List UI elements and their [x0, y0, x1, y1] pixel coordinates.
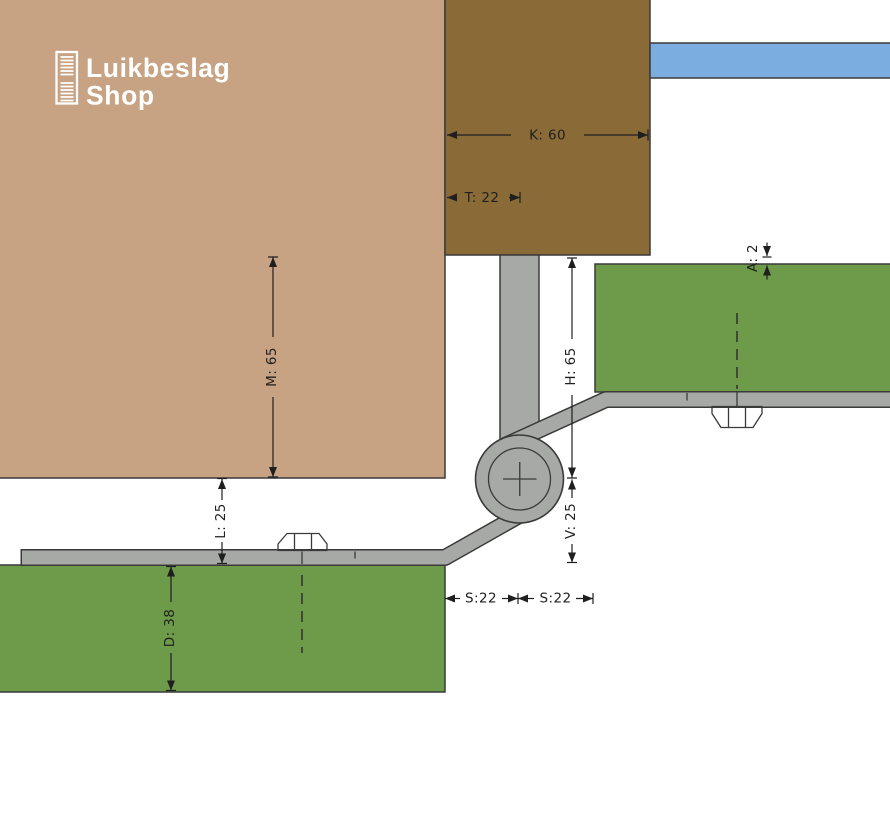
- dimension-V-label: V: 25: [563, 503, 579, 539]
- dimension-M-label: M: 65: [264, 347, 280, 387]
- dimension-H: H: 65: [563, 258, 579, 478]
- brand-name-line1: Luikbeslag: [86, 53, 230, 83]
- dimension-S2-label: S:22: [540, 591, 572, 607]
- dimension-T-label: T: 22: [464, 190, 500, 206]
- carriage-bolt-nut-right: [712, 407, 762, 428]
- hinge-knuckle: [476, 435, 564, 523]
- dimension-S2: S:22: [518, 591, 593, 607]
- slat-bar-block: [650, 43, 890, 78]
- technical-drawing-canvas: K: 60 T: 22 M: 65 L: 25 D: 38 H: 65 V: 2…: [0, 0, 890, 821]
- dimension-H-label: H: 65: [563, 347, 579, 385]
- dimension-A-label: A: 2: [745, 244, 761, 272]
- dimension-K-label: K: 60: [529, 128, 566, 144]
- dimension-V: V: 25: [563, 480, 579, 563]
- hinge-strap-right: [504, 400, 890, 447]
- dimension-S1: S:22: [445, 591, 518, 607]
- shutter-right-block: [595, 264, 890, 392]
- dimension-S1-label: S:22: [465, 591, 497, 607]
- brand-name-line2: Shop: [86, 81, 155, 111]
- dimension-D-label: D: 38: [162, 609, 178, 647]
- hinge-dimension-diagram: K: 60 T: 22 M: 65 L: 25 D: 38 H: 65 V: 2…: [0, 0, 890, 821]
- dimension-L-label: L: 25: [213, 503, 229, 539]
- shutter-left-block: [0, 565, 445, 692]
- carriage-bolt-nut-left: [278, 534, 327, 551]
